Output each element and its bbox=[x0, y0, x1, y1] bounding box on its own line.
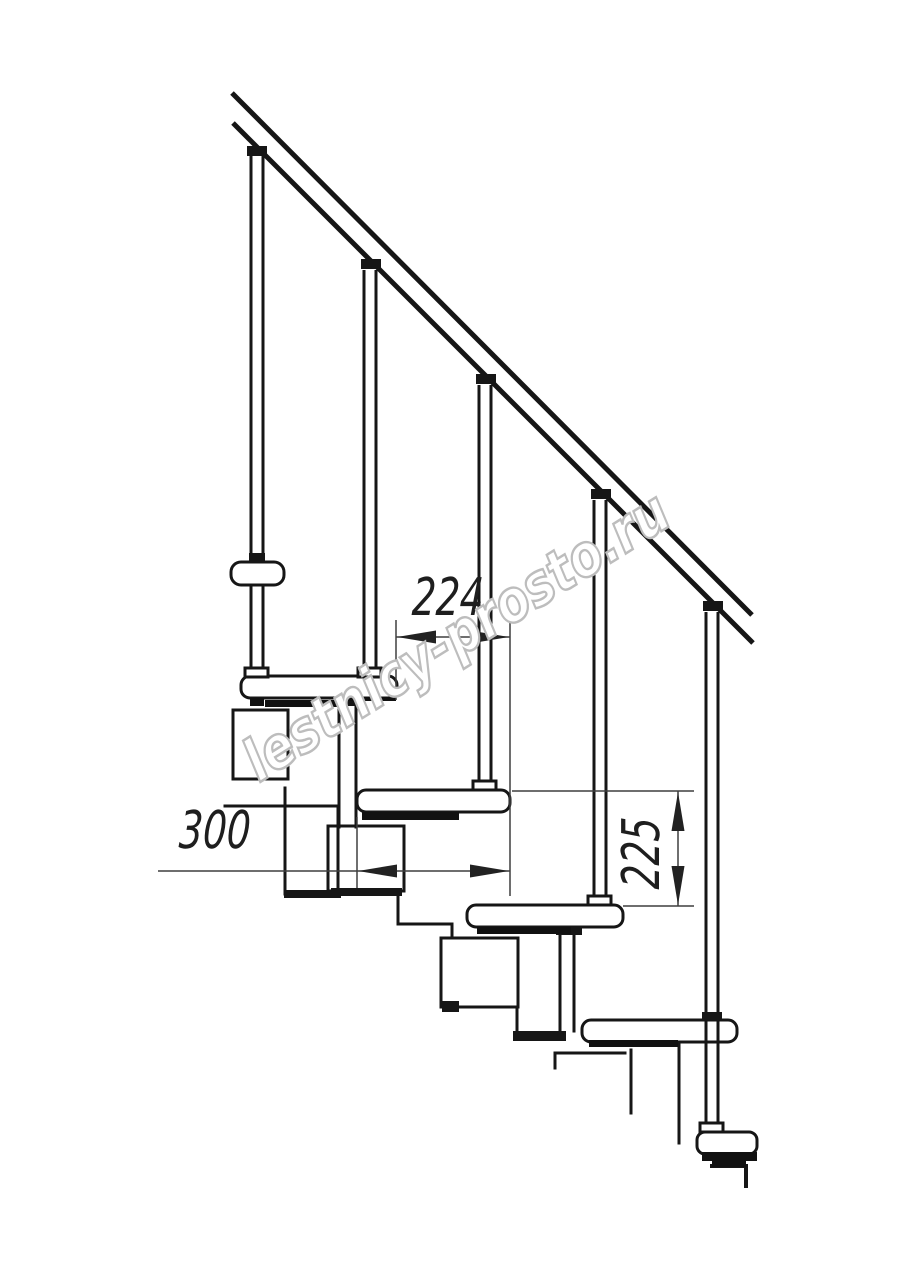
dimension-label-riser-height: 225 bbox=[616, 816, 668, 890]
tread bbox=[467, 905, 623, 927]
tread-undersides bbox=[250, 697, 757, 1167]
tread-bottom-partial bbox=[697, 1132, 757, 1154]
tread-underside-band bbox=[250, 698, 264, 706]
module-bottom-band bbox=[331, 888, 402, 896]
handrail-bottom-edge bbox=[233, 123, 753, 643]
support-box bbox=[441, 938, 518, 1007]
arrow-left bbox=[358, 865, 397, 878]
support-box bbox=[285, 806, 338, 894]
baluster-foot bbox=[588, 896, 611, 905]
baluster-5 bbox=[700, 601, 723, 1132]
arrow-right bbox=[470, 865, 509, 878]
baluster-2 bbox=[358, 259, 381, 677]
arrow-down bbox=[672, 866, 685, 905]
baluster-foot bbox=[473, 781, 496, 790]
tread-underside-band bbox=[712, 1160, 746, 1167]
support-modules bbox=[225, 702, 746, 1186]
tread-underside-band bbox=[362, 812, 459, 820]
wall-bracket bbox=[231, 562, 284, 585]
tread bbox=[357, 790, 510, 812]
tread-underside-band bbox=[702, 1152, 757, 1161]
arrow-up bbox=[672, 792, 685, 831]
tread-underside-band bbox=[477, 927, 571, 934]
dimension-label-tread-depth: 300 bbox=[178, 805, 252, 857]
tread-underside-band bbox=[589, 1040, 678, 1047]
baluster-foot bbox=[245, 668, 268, 677]
stair-technical-drawing: 224 300 225 lestnicy-prosto.ru bbox=[0, 0, 914, 1280]
module-hook-contour bbox=[555, 1053, 625, 1068]
baluster-1 bbox=[231, 146, 284, 677]
baluster-foot bbox=[700, 1123, 723, 1132]
module-bottom-notch bbox=[442, 1001, 459, 1012]
module-shelf bbox=[513, 1031, 566, 1041]
baluster-joint bbox=[702, 1012, 722, 1020]
bottom-step-contour bbox=[712, 1166, 746, 1186]
module-step-contour bbox=[398, 891, 452, 938]
tread bbox=[582, 1020, 737, 1042]
